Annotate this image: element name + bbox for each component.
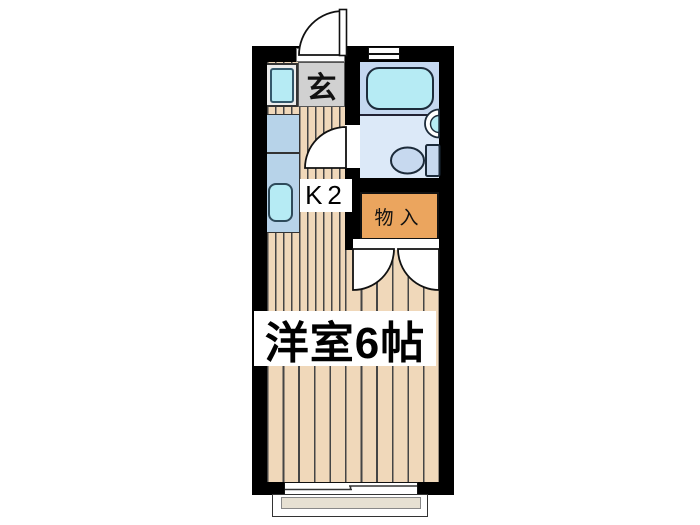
- wall-top: [252, 46, 454, 62]
- kitchen-label: K2: [305, 180, 347, 211]
- bathroom-window-line: [369, 53, 399, 55]
- storage-closet: 物入: [360, 192, 439, 240]
- balcony-floor: [281, 497, 421, 509]
- washing-machine-tub: [270, 68, 294, 103]
- entrance-label: 玄: [307, 63, 337, 107]
- kitchen-label-box: K2: [300, 179, 352, 212]
- toilet-zone-floor: [360, 116, 439, 178]
- wall-right: [439, 46, 454, 495]
- wall-bathroom-bottom: [345, 178, 439, 192]
- closet-label: 物入: [374, 203, 424, 230]
- main-room-label-box: 洋室6帖: [254, 311, 436, 366]
- counter-divider-line: [266, 152, 299, 154]
- floorplan-canvas: 玄 物入: [0, 0, 700, 525]
- bathroom-door-opening: [345, 125, 360, 168]
- entrance-genkan-area: 玄: [298, 62, 345, 107]
- closet-door-threshold: [353, 239, 439, 250]
- main-room-label: 洋室6帖: [265, 307, 425, 371]
- bathtub: [366, 67, 434, 110]
- kitchen-sink: [268, 183, 293, 222]
- wall-left: [252, 46, 267, 495]
- entrance-door-threshold: [296, 48, 345, 62]
- bathroom-window: [368, 47, 400, 60]
- balcony-sliding-window: [284, 482, 418, 495]
